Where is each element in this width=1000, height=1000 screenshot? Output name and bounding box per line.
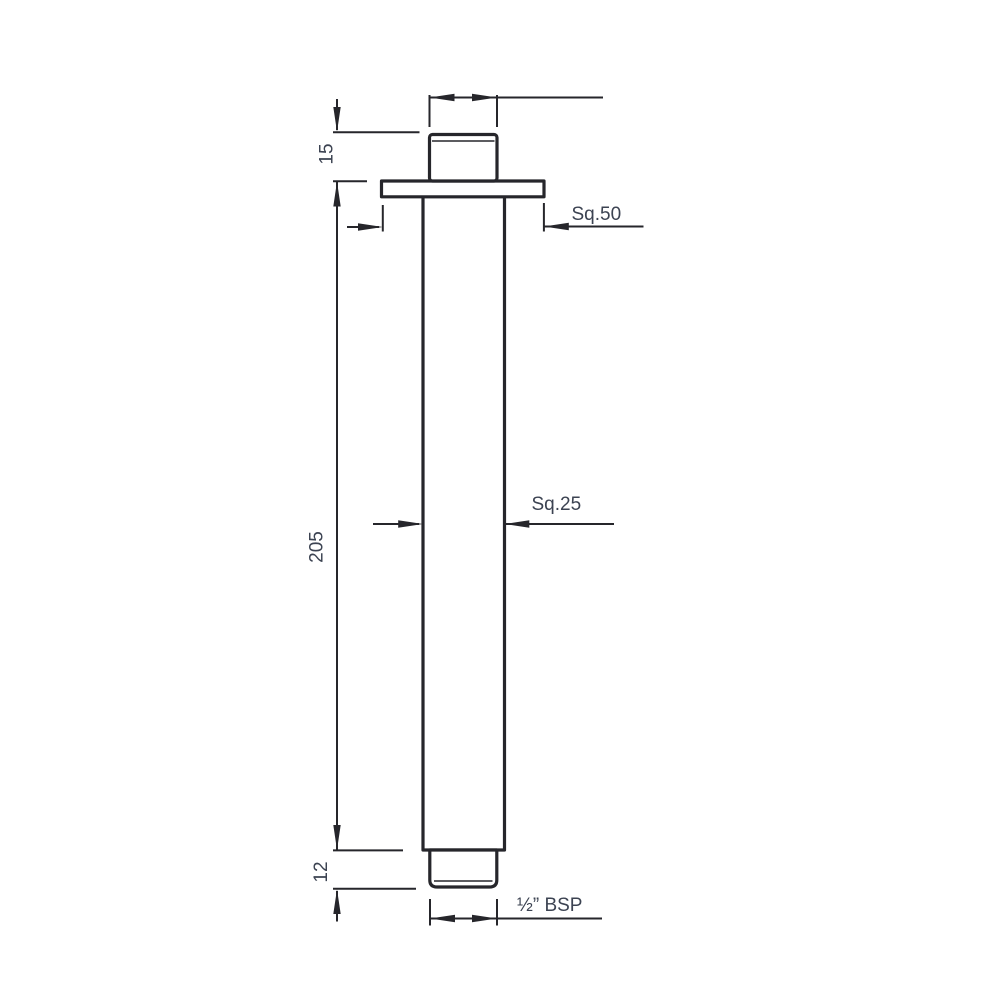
arrow-up-icon	[333, 889, 340, 914]
arrow-right-icon	[472, 915, 497, 922]
arrow-right-icon	[398, 520, 423, 527]
arrow-left-icon	[505, 520, 530, 527]
ceiling-flange	[382, 181, 545, 197]
dim-label-bsp: ½” BSP	[517, 895, 582, 916]
dim-label-sq50: Sq.50	[572, 204, 622, 225]
dim-label-sq25: Sq.25	[532, 494, 582, 515]
arrow-left-icon	[430, 915, 455, 922]
dim-thread-spec: ½” BSP	[430, 895, 602, 926]
dim-label-12: 12	[311, 861, 332, 882]
dim-arm-length: 205	[307, 181, 404, 850]
arrow-left-icon	[430, 94, 455, 101]
dim-bottom-thread-length: 12	[311, 861, 416, 921]
dim-label-205: 205	[307, 531, 328, 563]
arrow-right-icon	[472, 94, 497, 101]
shower-arm-part	[382, 135, 545, 888]
arrow-up-icon	[333, 182, 340, 207]
dim-label-15: 15	[317, 143, 338, 164]
arrow-right-icon	[358, 223, 383, 230]
arrow-down-icon	[333, 825, 340, 850]
arm-tube	[423, 197, 505, 851]
arrow-down-icon	[333, 107, 340, 132]
dim-top-width	[430, 94, 604, 127]
dim-top-connector-height: 15	[317, 99, 420, 165]
technical-drawing: 15 205 12 Sq.50 Sq.25	[0, 0, 1000, 1000]
arrow-left-icon	[544, 223, 569, 230]
